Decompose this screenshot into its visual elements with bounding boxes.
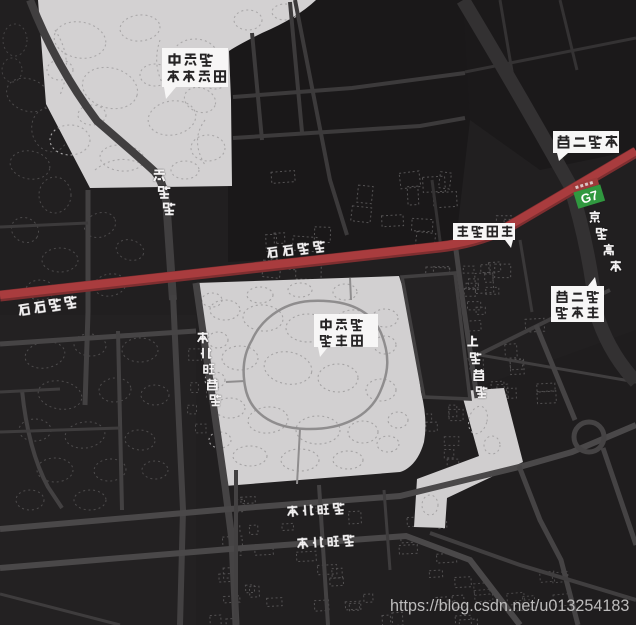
svg-text:https://blog.csdn.net/u0132541: https://blog.csdn.net/u013254183	[390, 597, 629, 615]
